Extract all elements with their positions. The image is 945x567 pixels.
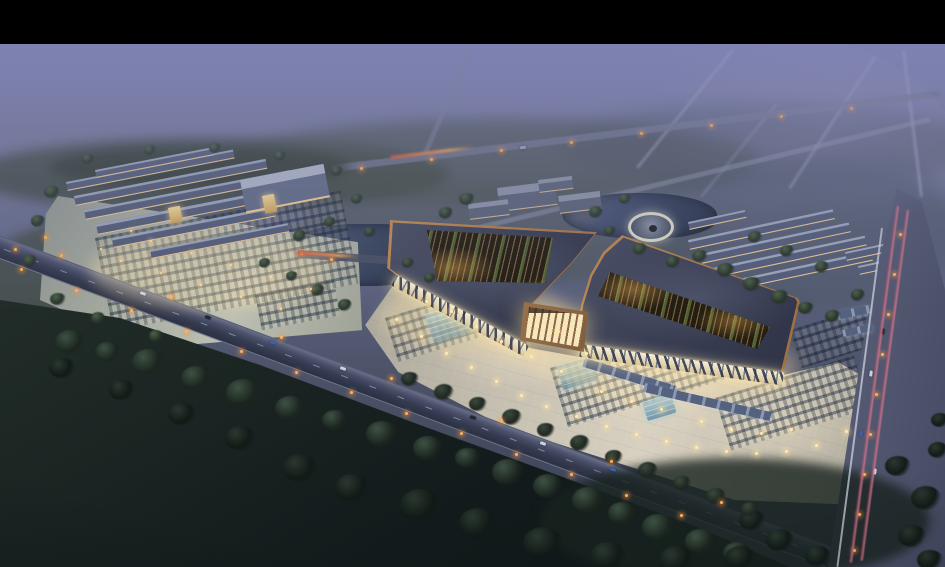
aerial-render-image (0, 0, 945, 567)
letterbox-bar-top (0, 0, 945, 44)
light-trail-red (390, 146, 475, 159)
light-trail-pink (860, 210, 909, 561)
light-trail-white (836, 228, 883, 567)
light-trails-layer (0, 0, 945, 567)
light-trail-red (296, 251, 358, 258)
light-trail-pink (850, 206, 899, 563)
